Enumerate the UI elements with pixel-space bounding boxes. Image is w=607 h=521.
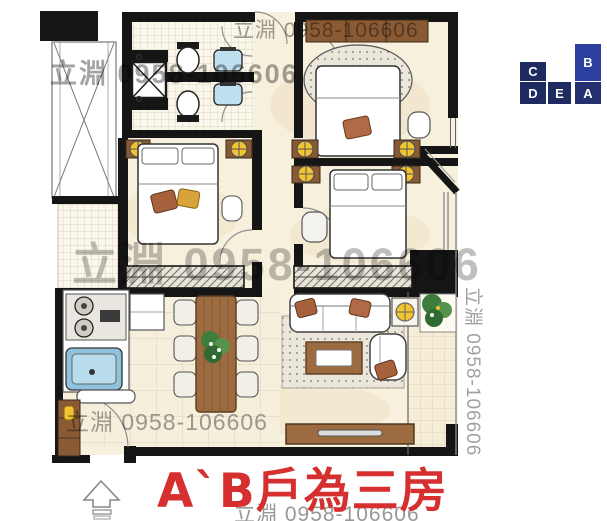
coffee-table: [306, 342, 362, 374]
watermark-upper-left: 立淵 0958-106606: [50, 61, 299, 88]
side-table-lamp: [392, 298, 418, 326]
pillow: [182, 148, 214, 164]
dining-chair: [236, 336, 258, 361]
unit-key-d: D: [520, 82, 546, 104]
pillow: [142, 148, 178, 164]
toilet: [177, 91, 199, 117]
floorplan-page: 立淵 0958-106606 立淵 0958-106606 立淵 0958-10…: [0, 0, 607, 521]
watermark-center: 立淵 0958-106606: [72, 242, 482, 287]
chair: [302, 212, 327, 242]
dining-chair: [236, 372, 258, 397]
armchair: [370, 334, 406, 381]
pillow: [334, 174, 368, 190]
dining-chair: [174, 372, 196, 397]
caption-title: A`B戶為三房: [157, 452, 448, 521]
unit-key-a: A: [575, 82, 601, 104]
stool: [222, 196, 242, 221]
unit-key-e: E: [548, 82, 571, 104]
accent-pillow: [177, 188, 201, 208]
counter-peninsula: [77, 390, 135, 403]
entrance-arrow-icon: [84, 481, 119, 519]
pillow: [372, 174, 402, 190]
unit-key-c: C: [520, 62, 546, 81]
toilet-tank: [177, 115, 199, 122]
bed: [316, 66, 400, 156]
watermark-top: 立淵 0958-106606: [233, 20, 419, 41]
unit-key-b: B: [575, 44, 601, 81]
sofa-pillow: [349, 298, 372, 318]
sofa: [290, 294, 390, 332]
balcony-plant: [420, 294, 456, 332]
dining-chair: [236, 300, 258, 325]
dining-chair: [174, 336, 196, 361]
dining-set: [174, 296, 258, 412]
stool: [408, 112, 430, 138]
watermark-lower-left: 立淵 0958-106606: [66, 411, 268, 434]
watermark-vertical-right: 立淵 0958-106606: [463, 287, 482, 456]
dining-chair: [174, 300, 196, 325]
